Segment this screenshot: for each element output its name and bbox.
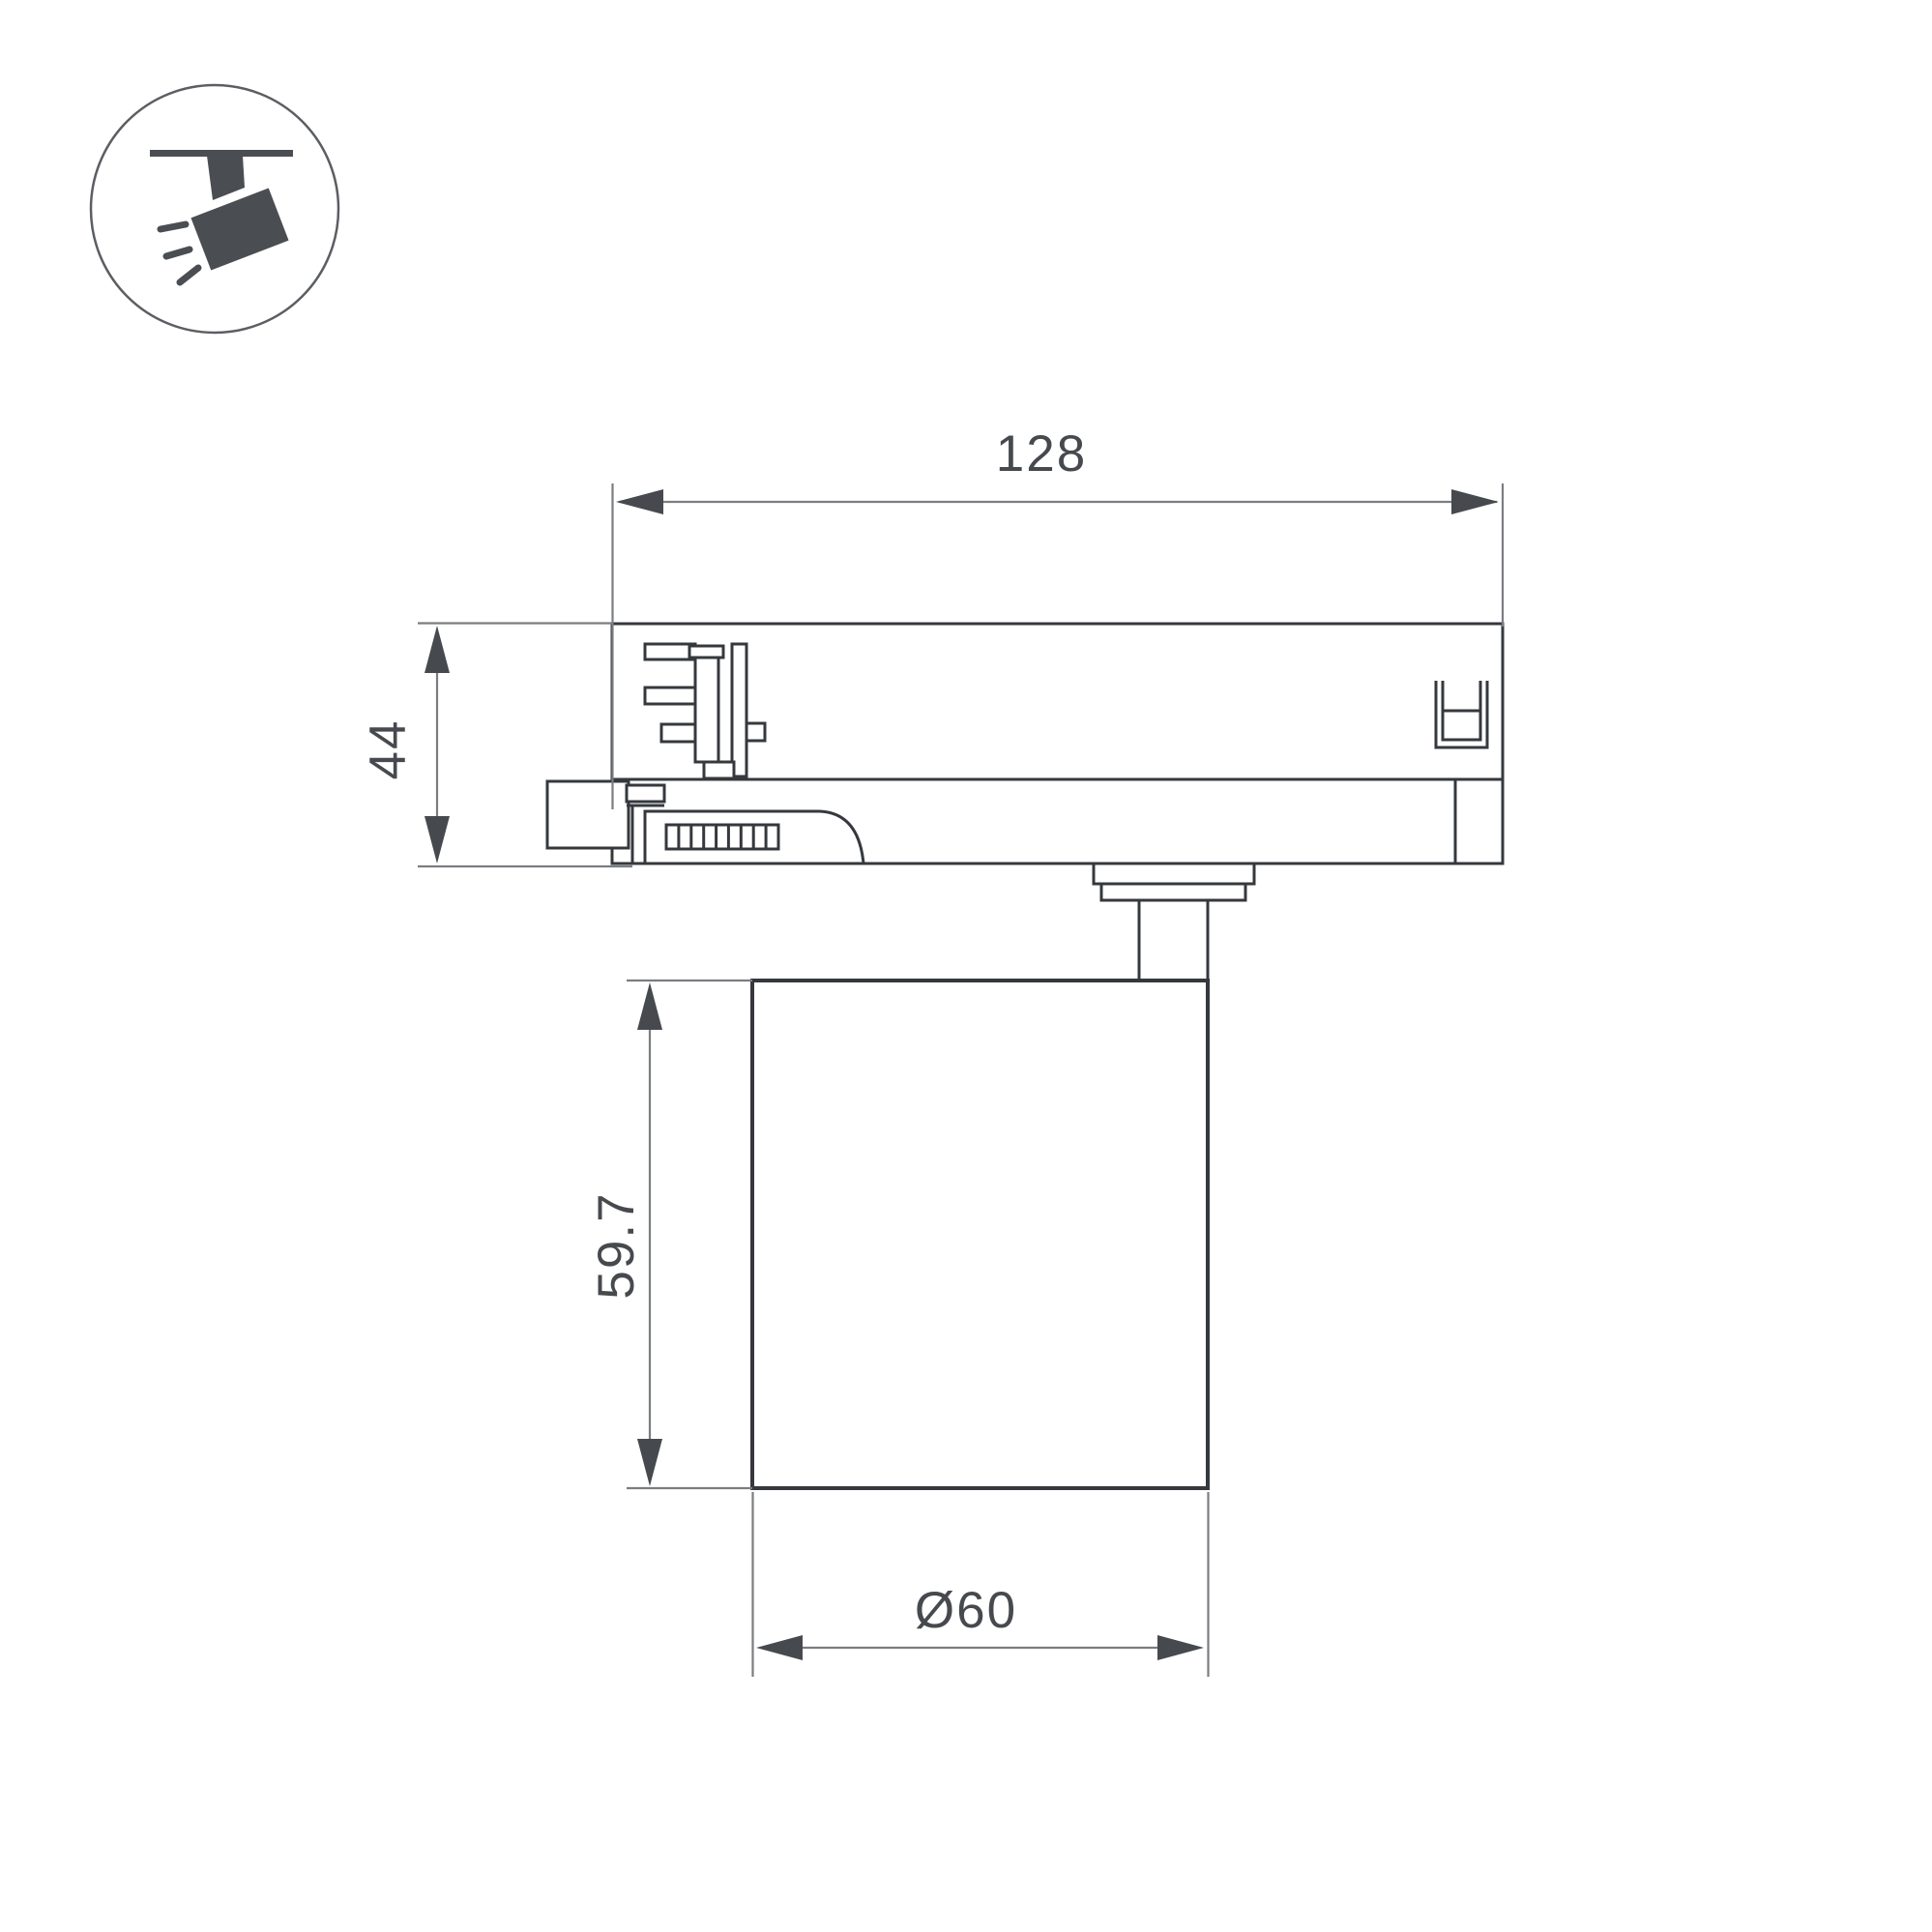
arrow-left-icon — [756, 1635, 803, 1660]
dimension-label-body-diameter: Ø60 — [915, 1582, 1017, 1639]
arrow-left-icon — [616, 489, 663, 514]
adapter-swivel-joint — [1094, 864, 1254, 981]
arrow-up-icon — [637, 982, 662, 1030]
technical-drawing: 128 44 59.7 Ø60 — [0, 0, 1932, 1932]
icon-lamp-head — [190, 189, 288, 271]
dimension-label-track-width: 128 — [996, 425, 1087, 483]
adapter-base-plate — [612, 779, 1503, 864]
icon-ceiling-track — [150, 150, 293, 157]
lamp-body-outline — [752, 981, 1208, 1488]
dimension-drawing-page: 128 44 59.7 Ø60 — [0, 0, 1932, 1932]
track-spotlight-icon — [91, 85, 338, 333]
arrow-up-icon — [424, 626, 450, 673]
arrow-down-icon — [637, 1439, 662, 1486]
adapter-slider-ribs — [666, 825, 778, 849]
dimension-body-height: 59.7 — [588, 981, 752, 1488]
arrow-down-icon — [424, 816, 450, 864]
arrow-right-icon — [1157, 1635, 1204, 1660]
dimension-body-diameter: Ø60 — [753, 1492, 1209, 1677]
icon-stem — [207, 156, 245, 200]
icon-light-rays — [161, 224, 198, 282]
adapter-arm-stem — [1139, 900, 1208, 981]
track-adapter-outline — [547, 624, 1503, 981]
dimension-label-adapter-height: 44 — [360, 719, 417, 780]
arrow-right-icon — [1451, 489, 1499, 514]
dimension-label-body-height: 59.7 — [588, 1191, 645, 1299]
